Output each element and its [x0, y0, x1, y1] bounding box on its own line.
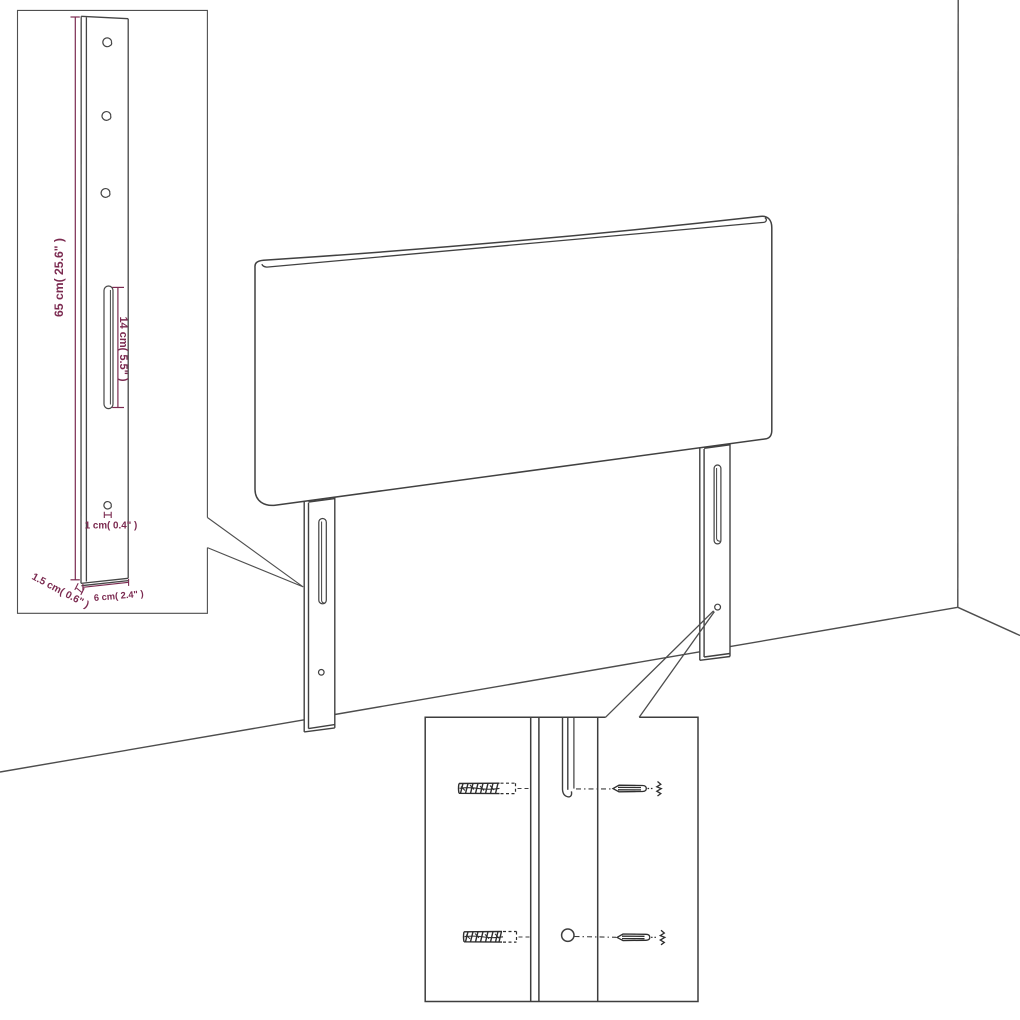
svg-text:14 cm( 5.5" ): 14 cm( 5.5" ): [117, 316, 129, 381]
svg-text:1 cm( 0.4" ): 1 cm( 0.4" ): [85, 521, 138, 532]
svg-text:6 cm( 2.4" ): 6 cm( 2.4" ): [93, 589, 144, 603]
svg-text:65 cm( 25.6" ): 65 cm( 25.6" ): [52, 238, 66, 317]
